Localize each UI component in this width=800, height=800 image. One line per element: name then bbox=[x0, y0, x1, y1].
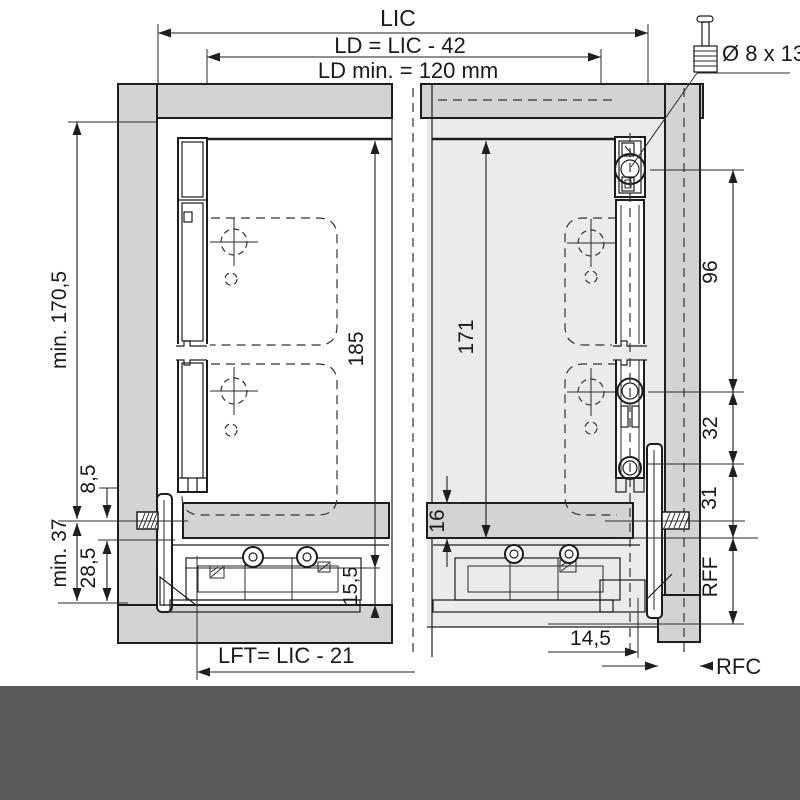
lic-label: LIC bbox=[380, 5, 416, 31]
dim-31-label: 31 bbox=[698, 486, 721, 509]
cabinet-side-panel-left bbox=[118, 84, 157, 643]
drawer-side-profile-left bbox=[175, 138, 210, 492]
dim-171-label: 171 bbox=[455, 319, 478, 354]
cabinet-top-panel-right bbox=[421, 84, 703, 118]
rfc-label: RFC bbox=[716, 654, 761, 679]
drawer-bottom-right bbox=[427, 503, 633, 538]
technical-drawing: Ø 8 x 13 LIC LD = LIC - 42 LD min. = 120… bbox=[0, 0, 800, 686]
dim-32-label: 32 bbox=[699, 416, 722, 439]
roller bbox=[560, 545, 578, 563]
dim-96-label: 96 bbox=[699, 260, 722, 283]
dim-28-5-label: 28,5 bbox=[77, 548, 100, 589]
lft-formula-label: LFT= LIC - 21 bbox=[218, 643, 354, 668]
min-37-label: min. 37 bbox=[48, 519, 71, 588]
dim-14-5-label: 14,5 bbox=[570, 627, 611, 650]
roller bbox=[243, 547, 263, 567]
drill-mark-left-lower bbox=[210, 367, 258, 436]
dowel-icon bbox=[694, 16, 717, 72]
cabinet-top-panel-left bbox=[118, 84, 392, 118]
dowel-size-label: Ø 8 x 13 bbox=[722, 41, 800, 66]
front-height-min-label: min. 170,5 bbox=[48, 271, 71, 369]
dim-16-label: 16 bbox=[426, 509, 449, 532]
ld-min-label: LD min. = 120 mm bbox=[318, 58, 498, 83]
roller bbox=[297, 547, 317, 567]
dim-rfc: RFC bbox=[602, 654, 761, 679]
dim-8-5: 8,5 bbox=[77, 464, 119, 518]
roller bbox=[505, 545, 523, 563]
drawer-bottom-left bbox=[183, 503, 389, 538]
ld-formula-label: LD = LIC - 42 bbox=[334, 33, 465, 58]
pilot-hole-mark bbox=[225, 424, 237, 436]
legend: RFF = Drawer front overlay on the bottom… bbox=[0, 686, 800, 800]
dim-15-5-label: 15,5 bbox=[340, 567, 362, 606]
drawer-installation-diagram: Ø 8 x 13 LIC LD = LIC - 42 LD min. = 120… bbox=[0, 0, 800, 800]
pilot-hole-mark bbox=[225, 273, 237, 285]
dim-rff-label: RFF bbox=[699, 557, 722, 598]
drill-mark-left-upper bbox=[210, 218, 258, 285]
dim-8-5-label: 8,5 bbox=[77, 464, 100, 493]
dim-185-label: 185 bbox=[345, 331, 368, 366]
drawer-front-side-lip bbox=[658, 595, 700, 642]
